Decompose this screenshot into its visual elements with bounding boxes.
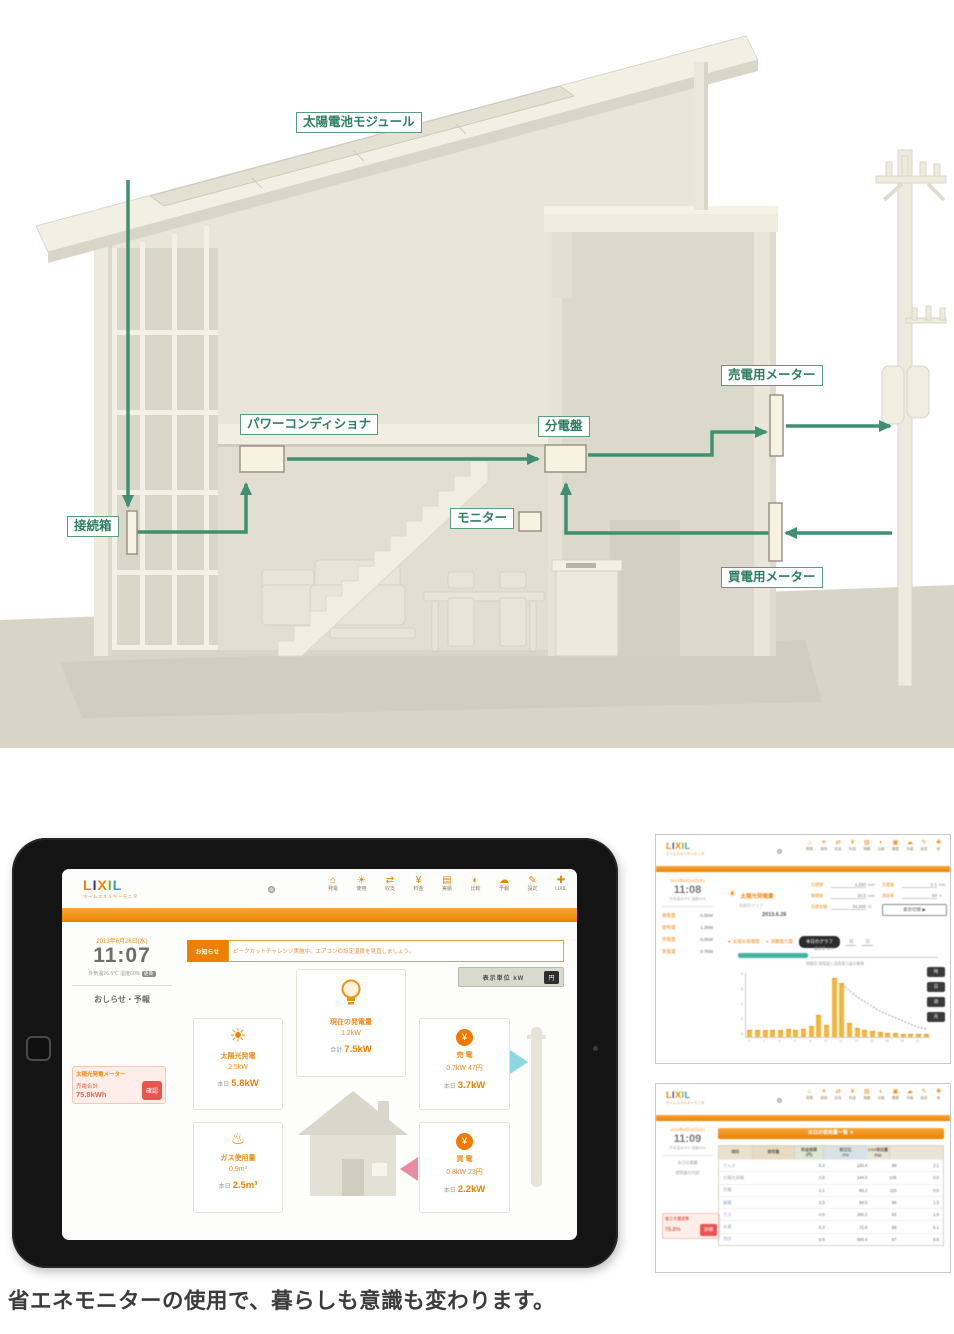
range-pill[interactable]: 月	[927, 1012, 945, 1022]
lixil-logo: LIXIL	[666, 1091, 691, 1100]
mini-nav: ⌂ 発電 ☀ 使用 ⇄ 収支 ¥ 料金	[803, 840, 945, 852]
nav-label: 使用	[817, 1096, 830, 1101]
achievement-gauge: 達成率 84%	[738, 953, 938, 959]
unit-toggle[interactable]: 表示単位 kW 円	[458, 967, 564, 987]
nav-label: 予報	[903, 1096, 916, 1101]
nav-icon: ▣	[889, 840, 902, 847]
sidebar-line2: 使用量の内訳	[660, 1170, 715, 1176]
form-field[interactable]: 目標値1,250kWh	[811, 882, 876, 888]
nav-icon: ◐	[875, 1089, 888, 1096]
nav-label: 使用	[817, 847, 830, 852]
form-field[interactable]: 売電量2.1kWh	[882, 882, 947, 888]
nav-icon: ☀	[817, 840, 830, 847]
sidebar-stat-row: 売電量0.0kW	[660, 937, 715, 943]
weather-text: 外気温26.5℃ 湿度60% 更新	[64, 970, 180, 977]
chart-note: 時間別 発電量と消費電力量の推移	[806, 962, 864, 967]
month-toggle[interactable]: 月	[846, 939, 857, 946]
import-arrow-icon	[400, 1157, 418, 1181]
logo-tagline: ホームエネルギーモニタ	[666, 1101, 704, 1106]
nav-label: LIXIL	[548, 886, 574, 892]
nav-label: 発電	[803, 1096, 816, 1101]
card-buy[interactable]: ¥ 買 電 0.8kW 23円 本日2.2kW	[419, 1122, 510, 1213]
nav-item[interactable]: ◐ 比較	[875, 1089, 888, 1101]
nav-item[interactable]: ◐ 比較	[463, 875, 489, 892]
banner-label: お知らせ	[187, 940, 228, 962]
legend-solar: 太陽光発電量	[728, 939, 760, 945]
nav-item[interactable]: ⌂ 発電	[320, 875, 346, 892]
nav-item[interactable]: ☁ 予報	[903, 1089, 916, 1101]
table-row: 合計 9.9 690.4 97 5.6	[719, 1233, 943, 1245]
nav-icon: ▤	[860, 1089, 873, 1096]
range-pill[interactable]: 時	[927, 967, 945, 977]
nav-label: 設定	[918, 1096, 931, 1101]
eco-title: 省エネ達成率	[665, 1216, 717, 1222]
mini-nav: ⌂ 発電 ☀ 使用 ⇄ 収支 ¥ 料金	[803, 1089, 945, 1101]
nav-item[interactable]: ☀ 使用	[349, 875, 375, 892]
tablet-camera-dot	[593, 1046, 598, 1051]
nav-icon: ✎	[918, 1089, 931, 1096]
table-row: 太陽光発電 3.8 144.0 105 0.0	[719, 1171, 943, 1183]
nav-item[interactable]: ▣ 履歴	[889, 1089, 902, 1101]
sidebar-stat-row: 使用量1.2kW	[660, 925, 715, 931]
tablet-home-button[interactable]	[26, 1036, 51, 1061]
page: 太陽電池モジュール パワーコンディショナ 分電盤 モニター 接続箱 売電用メータ…	[0, 0, 954, 1334]
nav-label: 履歴	[889, 847, 902, 852]
banner-text: ピークカットチャレンジ実施中。エアコンの設定温度を見直しましょう。	[228, 940, 564, 962]
nav-icon: ☀	[349, 875, 375, 886]
nav-label: 他	[932, 847, 945, 852]
nav-icon: ☀	[817, 1089, 830, 1096]
nav-icon: ⇄	[832, 840, 845, 847]
report-heading: ☀ 太陽光発電量 時間別グラフ 2013.6.26	[728, 885, 786, 918]
gauge-track	[810, 957, 938, 958]
chart-x-axis: 0246810121416182022	[745, 1039, 929, 1043]
nav-item[interactable]: ☀ 使用	[817, 1089, 830, 1101]
refresh-badge[interactable]: 更新	[142, 971, 156, 977]
divider	[662, 1155, 713, 1156]
nav-item[interactable]: ⇄ 収支	[832, 840, 845, 852]
sidebar-stat-row: 発電量0.5kW	[660, 913, 715, 919]
card-current-generation[interactable]: 現在の発電量 1.2kW 合計7.5kW	[296, 969, 406, 1077]
table-header-cell: 使用量	[753, 1146, 796, 1159]
nav-icon: ¥	[406, 875, 432, 886]
nav-label: 発電	[320, 886, 346, 892]
nav-item[interactable]: ¥ 料金	[846, 1089, 859, 1101]
nav-label: 比較	[875, 847, 888, 852]
nav-item[interactable]: ✚ 他	[932, 840, 945, 852]
label-buy-meter: 買電用メーター	[721, 567, 823, 588]
range-pill[interactable]: 週	[927, 997, 945, 1007]
buy-meter-device	[769, 503, 782, 561]
label-distribution-board: 分電盤	[538, 416, 590, 437]
sidebar-line1: 本日の実績	[660, 1160, 715, 1166]
form-field[interactable]: 目標金額34,000円	[811, 904, 876, 910]
monitor-screenshot-table: LIXIL ホームエネルギーモニタ ⌂ 発電 ☀ 使用 ⇄	[655, 1083, 951, 1273]
nav-item[interactable]: ▣ 履歴	[889, 840, 902, 852]
buy-coin-icon: ¥	[456, 1133, 473, 1150]
clock-time: 11:09	[660, 1133, 715, 1145]
nav-label: 履歴	[889, 1096, 902, 1101]
nav-icon: ⌂	[803, 1089, 816, 1096]
nav-icon: ◐	[463, 875, 489, 886]
nav-label: 料金	[406, 886, 432, 892]
table-row: 売電 2.1 88.2 110 0.0	[719, 1184, 943, 1196]
nav-icon: ⇄	[832, 1089, 845, 1096]
pole-graphic	[531, 1027, 542, 1187]
nav-item[interactable]: ▤ 実績	[860, 840, 873, 852]
nav-icon: ✚	[932, 1089, 945, 1096]
card-solar[interactable]: ☀ 太陽光発電 2.5kW 本日5.8kW	[193, 1018, 283, 1110]
label-solar-module: 太陽電池モジュール	[296, 112, 422, 133]
sell-coin-icon: ¥	[456, 1029, 473, 1046]
eco-detail-button[interactable]: 詳細	[700, 1224, 717, 1236]
nav-icon: ☁	[903, 840, 916, 847]
unit-toggle-button[interactable]: 円	[544, 971, 559, 984]
clock-time: 11:08	[660, 884, 715, 896]
nav-icon: ¥	[846, 840, 859, 847]
meter-panel: 太陽光発電メーター 売電合計 75.8kWh 確認	[72, 1066, 166, 1104]
nav-label: 実績	[434, 886, 460, 892]
table-title-bar[interactable]: 本日の使用量一覧 ▼	[718, 1128, 944, 1139]
nav-icon: ▣	[889, 1089, 902, 1096]
table-row: 買電 3.5 94.5 96 1.5	[719, 1196, 943, 1208]
lixil-logo: LIXIL	[666, 842, 691, 851]
monitor-screenshot-graph: LIXIL ホームエネルギーモニタ ⌂ 発電 ☀ 使用 ⇄	[655, 834, 951, 1064]
divider	[662, 906, 713, 907]
lixil-logo: LIXIL	[83, 878, 122, 892]
unit-toggle-label: 表示単位 kW	[463, 973, 544, 982]
range-pill[interactable]: 日	[927, 982, 945, 992]
header-orange-bar	[62, 908, 577, 922]
monitor-box	[519, 512, 541, 531]
table-header-cell: 前日比 (%)	[824, 1146, 867, 1159]
nav-item[interactable]: ✚ 他	[932, 1089, 945, 1101]
nav-label: 設定	[520, 886, 546, 892]
nav-label: 料金	[846, 1096, 859, 1101]
usage-table: 項目使用量料金換算 (円)前日比 (%)CO2排出量 (kg) でんき 5.2 …	[718, 1145, 944, 1246]
nav-item[interactable]: ◐ 比較	[875, 840, 888, 852]
gauge-note: 達成率 84%	[814, 947, 834, 952]
power-conditioner-box	[240, 446, 284, 472]
nav-icon: ▤	[860, 840, 873, 847]
nav-icon: ◐	[875, 840, 888, 847]
house-graphic	[290, 1083, 416, 1201]
label-monitor: モニター	[450, 508, 514, 529]
form-field[interactable]: 達成率84%	[882, 893, 947, 899]
nav-label: 料金	[846, 847, 859, 852]
weather-text: 外気温26.5℃ 湿度60%	[660, 1146, 715, 1151]
form-field[interactable]: 実績値10.5kWh	[811, 893, 876, 899]
table-row: 水道 0.3 72.6 88 0.1	[719, 1220, 943, 1232]
nav-label: 設定	[918, 847, 931, 852]
chart-y-axis: 43210	[734, 973, 743, 1037]
panel2-main: 本日の使用量一覧 ▼ 項目使用量料金換算 (円)前日比 (%)CO2排出量 (k…	[718, 1128, 944, 1246]
weather-text: 外気温26.5℃ 湿度60%	[660, 897, 715, 902]
nav-icon: ⌂	[320, 875, 346, 886]
nav-icon: ¥	[846, 1089, 859, 1096]
eco-value: 75.8%	[665, 1227, 681, 1233]
nav-icon: ✎	[520, 875, 546, 886]
meter-values: 売電合計 75.8kWh	[76, 1084, 142, 1098]
chart-line	[746, 973, 930, 1037]
table-header-cell: 項目	[719, 1146, 753, 1159]
nav-icon: ▤	[434, 875, 460, 886]
clock-time: 11:07	[64, 945, 180, 967]
panel2-sidebar: 2013年6月26日(水) 11:09 外気温26.5℃ 湿度60% 本日の実績…	[660, 1121, 715, 1176]
nav-label: 収支	[377, 886, 403, 892]
notice-banner: お知らせ ピークカットチャレンジ実施中。エアコンの設定温度を見直しましょう。	[187, 940, 564, 962]
nav-label: 予報	[491, 886, 517, 892]
day-toggle[interactable]: 日	[862, 939, 873, 946]
notice-heading: おしらせ・予報	[64, 994, 180, 1005]
nav-item[interactable]: ✎ 設定	[520, 875, 546, 892]
nav-icon: ✚	[932, 840, 945, 847]
nav-item[interactable]: ☀ 使用	[817, 840, 830, 852]
sun-icon: ☀	[728, 888, 736, 898]
tablet-screen: LIXIL ホームエネルギーモニタ ⌂ 発電 ☀ 使用 ⇄	[62, 869, 577, 1240]
nav-item[interactable]: ☁ 予報	[491, 875, 517, 892]
nav-item[interactable]: ¥ 料金	[406, 875, 432, 892]
meter-title: 太陽光発電メーター	[76, 1070, 162, 1078]
nav-label: 他	[932, 1096, 945, 1101]
nav-label: 実績	[860, 1096, 873, 1101]
nav-icon: ⌂	[803, 840, 816, 847]
form-button[interactable]: 表示切替 ▶	[882, 904, 947, 916]
target-form: 目標値1,250kWh 実績値10.5kWh 目標金額34,000円	[811, 882, 947, 916]
range-pills: 時日週月	[927, 967, 945, 1022]
table-header: 項目使用量料金換算 (円)前日比 (%)CO2排出量 (kg)	[719, 1146, 943, 1159]
tablet-nav: ⌂ 発電 ☀ 使用 ⇄ 収支 ¥ 料金	[320, 875, 574, 892]
eco-panel: 省エネ達成率 75.8% 詳細	[662, 1213, 720, 1239]
export-arrow-icon	[510, 1050, 528, 1074]
tablet-device: LIXIL ホームエネルギーモニタ ⌂ 発電 ☀ 使用 ⇄	[12, 838, 618, 1268]
chart-legend: 太陽光発電量 消費電力量 本日のグラフ 月 日	[728, 936, 873, 948]
chart-plot	[745, 973, 930, 1038]
nav-item[interactable]: ▤ 実績	[860, 1089, 873, 1101]
table-header-cell: 料金換算 (円)	[795, 1146, 824, 1159]
label-power-conditioner: パワーコンディショナ	[240, 414, 378, 435]
bulb-icon	[340, 978, 362, 1008]
sidebar-stat-row: 買電量0.7kW	[660, 949, 715, 955]
nav-item[interactable]: ✎ 設定	[918, 1089, 931, 1101]
house-structure	[94, 78, 778, 656]
logo-tagline: ホームエネルギーモニタ	[83, 894, 138, 900]
solar-system-diagram: 太陽電池モジュール パワーコンディショナ 分電盤 モニター 接続箱 売電用メータ…	[0, 0, 954, 760]
tablet-sidebar: 2013年6月26日(水) 11:07 外気温26.5℃ 湿度60% 更新 おし…	[64, 922, 180, 1005]
table-row: でんき 5.2 130.4 98 2.1	[719, 1159, 943, 1171]
sun-icon: ☀	[229, 1026, 246, 1047]
card-gas[interactable]: ♨ ガス使用量 0.9m³ 本日2.5m³	[193, 1122, 283, 1213]
nav-item[interactable]: ⌂ 発電	[803, 840, 816, 852]
nav-icon: ☁	[903, 1089, 916, 1096]
meter-confirm-button[interactable]: 確認	[142, 1081, 162, 1100]
table-row: ガス 0.9 160.2 92 1.9	[719, 1208, 943, 1220]
nav-item[interactable]: ☁ 予報	[903, 840, 916, 852]
divider	[72, 985, 172, 986]
panel1-sidebar: 2013年6月26日(水) 11:08 外気温26.5℃ 湿度60% 発電量0.…	[660, 872, 715, 955]
nav-item[interactable]: ✚ LIXIL	[548, 875, 574, 892]
gear-icon[interactable]	[777, 849, 782, 854]
gas-icon: ♨	[231, 1131, 245, 1148]
nav-label: 使用	[349, 886, 375, 892]
junction-box-device	[127, 511, 137, 554]
table-header-cell: CO2排出量 (kg)	[867, 1146, 890, 1159]
nav-icon: ⇄	[377, 875, 403, 886]
gear-icon[interactable]	[268, 886, 275, 893]
nav-icon: ☁	[491, 875, 517, 886]
nav-item[interactable]: ⇄ 収支	[832, 1089, 845, 1101]
nav-item[interactable]: ✎ 設定	[918, 840, 931, 852]
nav-label: 発電	[803, 847, 816, 852]
nav-item[interactable]: ⇄ 収支	[377, 875, 403, 892]
sell-meter-device	[770, 395, 783, 456]
legend-usage: 消費電力量	[766, 939, 793, 945]
page-caption: 省エネモニターの使用で、暮らしも意識も変わります。	[8, 1284, 555, 1315]
nav-label: 実績	[860, 847, 873, 852]
gauge-fill	[738, 953, 808, 958]
nav-label: 収支	[832, 1096, 845, 1101]
label-junction-box: 接続箱	[67, 516, 119, 537]
nav-item[interactable]: ▤ 実績	[434, 875, 460, 892]
nav-label: 収支	[832, 847, 845, 852]
nav-item[interactable]: ⌂ 発電	[803, 1089, 816, 1101]
nav-label: 予報	[903, 847, 916, 852]
distribution-board-box	[545, 445, 586, 472]
gear-icon[interactable]	[777, 1098, 782, 1103]
card-sell[interactable]: ¥ 売 電 0.7kW 47円 本日3.7kW	[419, 1018, 510, 1110]
nav-icon: ✎	[918, 840, 931, 847]
logo-tagline: ホームエネルギーモニタ	[666, 852, 704, 857]
nav-icon: ✚	[548, 875, 574, 886]
nav-item[interactable]: ¥ 料金	[846, 840, 859, 852]
label-sell-meter: 売電用メーター	[721, 365, 823, 386]
nav-label: 比較	[463, 886, 489, 892]
nav-label: 比較	[875, 1096, 888, 1101]
